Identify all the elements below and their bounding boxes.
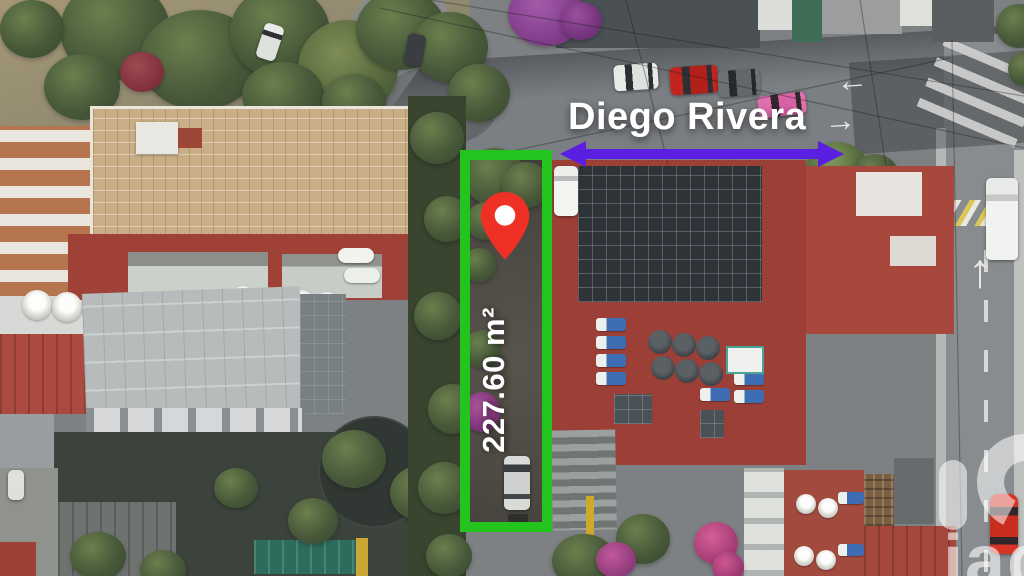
water-tank: [794, 546, 814, 566]
red-flat-roof: [0, 334, 86, 414]
rooftop-white-patch: [856, 172, 922, 216]
parked-car-white: [613, 62, 659, 91]
bougainvillea-pink: [712, 552, 744, 576]
house-roof-red-small: [0, 542, 36, 576]
tree: [410, 112, 464, 164]
roof-dark-top-2: [932, 0, 994, 42]
black-water-tank: [675, 359, 699, 383]
water-tank: [22, 290, 52, 320]
water-tank: [796, 494, 816, 514]
roof-gray-top: [822, 0, 902, 34]
bougainvillea-purple: [560, 2, 602, 40]
roof-checker-tan: [864, 474, 894, 526]
teal-trim-box: [726, 346, 764, 374]
roof-teal-top: [792, 0, 822, 42]
yellow-ladder: [356, 538, 368, 576]
tree: [288, 498, 338, 544]
roof-white-top: [758, 0, 794, 30]
parked-car-gray: [717, 69, 761, 98]
aerial-photo-listing: ↑ ← →: [0, 0, 1024, 576]
solar-heater: [596, 354, 626, 367]
gas-cylinder-white: [344, 268, 380, 283]
rooftop-structure-white: [136, 122, 178, 154]
rooftop-white-patch-2: [890, 236, 936, 266]
tree: [426, 534, 472, 576]
solar-heater: [596, 318, 626, 331]
watermark-text: iad: [943, 520, 1024, 576]
solar-heater: [734, 390, 764, 403]
street-direction-arrow: [558, 138, 846, 170]
black-water-tank: [651, 356, 675, 380]
rooftop-patch-red: [178, 128, 202, 148]
black-water-tank: [672, 333, 696, 357]
road-arrow-left: ←: [835, 63, 869, 97]
narrow-street-left: [0, 414, 54, 470]
metal-roof-dark-panel: [300, 294, 346, 414]
tree: [70, 532, 126, 576]
roof-white-top-2: [900, 0, 934, 26]
tree-flowering-red: [120, 52, 164, 92]
roof-dark-slab: [894, 458, 934, 524]
watermark-logo: iad: [935, 420, 1024, 576]
metal-roof-large: [82, 286, 304, 420]
gas-cylinder-white: [338, 248, 374, 263]
stairs-terrace: [551, 429, 617, 530]
skylight-window-small: [700, 410, 724, 438]
building-white-wall: [744, 468, 784, 576]
skylight-window-small: [614, 394, 652, 424]
tree: [414, 292, 462, 340]
parked-van-white: [554, 166, 578, 216]
black-water-tank: [648, 330, 672, 354]
street-name-label: Diego Rivera: [568, 96, 806, 139]
truck-white: [986, 178, 1018, 260]
water-tank: [52, 292, 82, 322]
chevron-marking: [950, 200, 986, 226]
black-water-tank: [696, 336, 720, 360]
solar-heater: [596, 372, 626, 385]
teal-shed-roof: [254, 540, 356, 574]
tree: [214, 468, 258, 508]
water-tank: [816, 550, 836, 570]
lot-area-label: 227.60 m²: [476, 260, 518, 500]
glass-skylight-grid: [578, 166, 762, 302]
solar-heater: [700, 388, 730, 401]
solar-heater: [838, 544, 864, 556]
parked-car-red: [669, 64, 719, 95]
solar-heater: [596, 336, 626, 349]
bougainvillea-magenta: [596, 542, 636, 576]
road-arrow-right: →: [823, 103, 857, 137]
tree: [0, 0, 64, 58]
tree: [322, 430, 386, 488]
black-water-tank: [699, 362, 723, 386]
solar-heater: [838, 492, 864, 504]
location-pin-icon: [477, 192, 533, 262]
parked-car-white: [8, 470, 24, 500]
water-tank: [818, 498, 838, 518]
